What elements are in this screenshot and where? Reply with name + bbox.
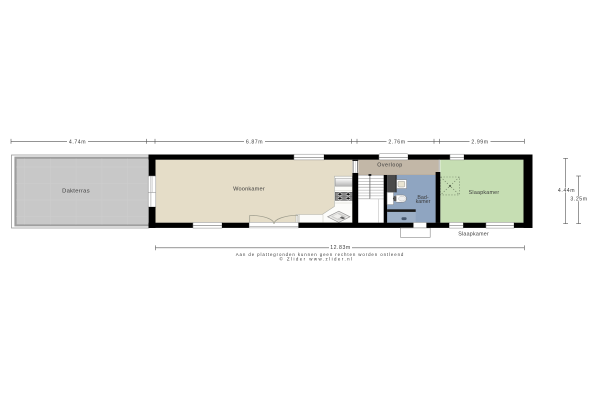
svg-text:12.83m: 12.83m — [330, 245, 351, 251]
svg-text:Slaapkamer: Slaapkamer — [469, 190, 500, 196]
svg-text:kamer: kamer — [416, 199, 431, 205]
svg-text:4.74m: 4.74m — [69, 139, 86, 145]
svg-text:Overloop: Overloop — [377, 163, 403, 169]
svg-text:3.25m: 3.25m — [570, 197, 587, 203]
svg-text:© Zlider www.zlider.nl: © Zlider www.zlider.nl — [280, 256, 354, 261]
svg-text:Dakterras: Dakterras — [62, 189, 90, 195]
svg-text:2.99m: 2.99m — [471, 139, 488, 145]
svg-text:6.87m: 6.87m — [246, 139, 263, 145]
svg-text:Slaapkamer: Slaapkamer — [458, 232, 489, 238]
svg-text:4.44m: 4.44m — [558, 188, 575, 194]
svg-text:2.76m: 2.76m — [388, 139, 405, 145]
svg-text:Woonkamer: Woonkamer — [233, 186, 265, 192]
